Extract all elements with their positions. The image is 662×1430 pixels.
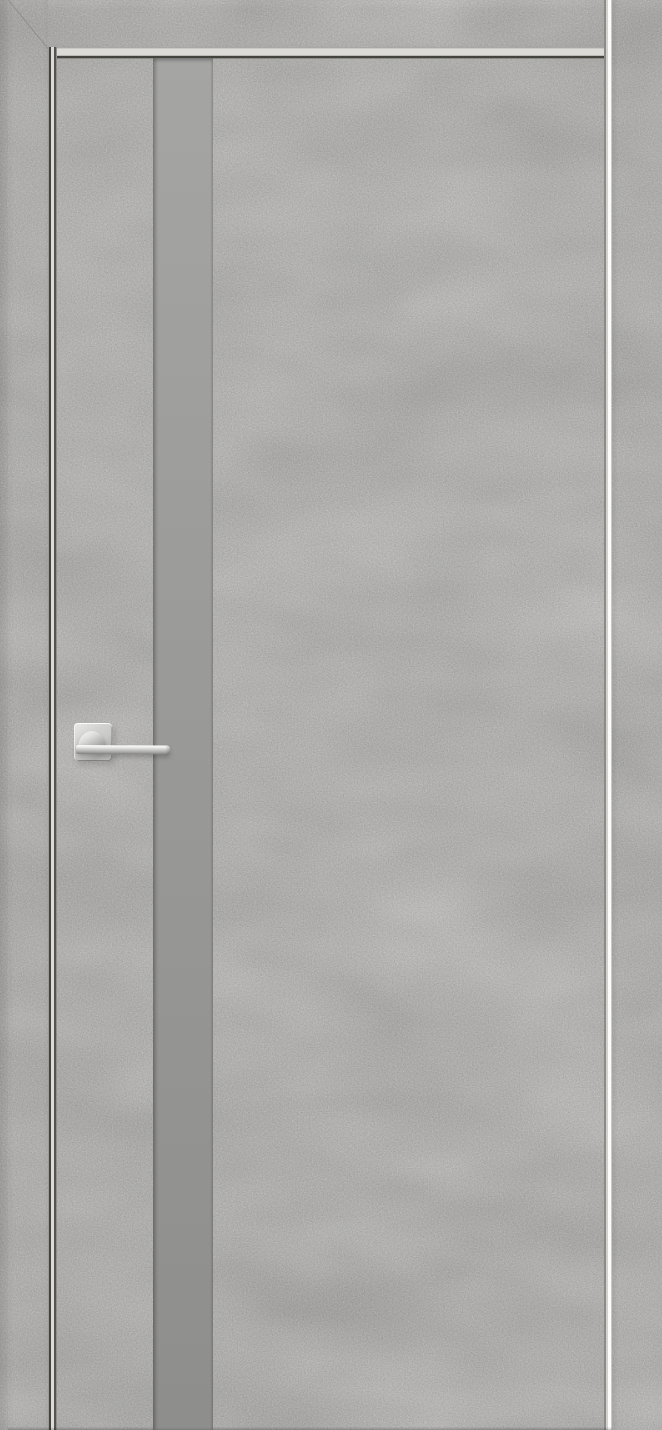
handle-lever-bar (76, 745, 170, 755)
concrete-texture-overlay (0, 0, 662, 1430)
door-product-photo (0, 0, 662, 1430)
frame-reveal-left (48, 47, 57, 1430)
glass-insert-strip (153, 58, 213, 1430)
texture-light-grain-layer (0, 0, 662, 1430)
frame-gap-right (604, 0, 612, 1430)
handle-lever-tip (165, 746, 170, 755)
frame-reveal-top (48, 47, 606, 59)
